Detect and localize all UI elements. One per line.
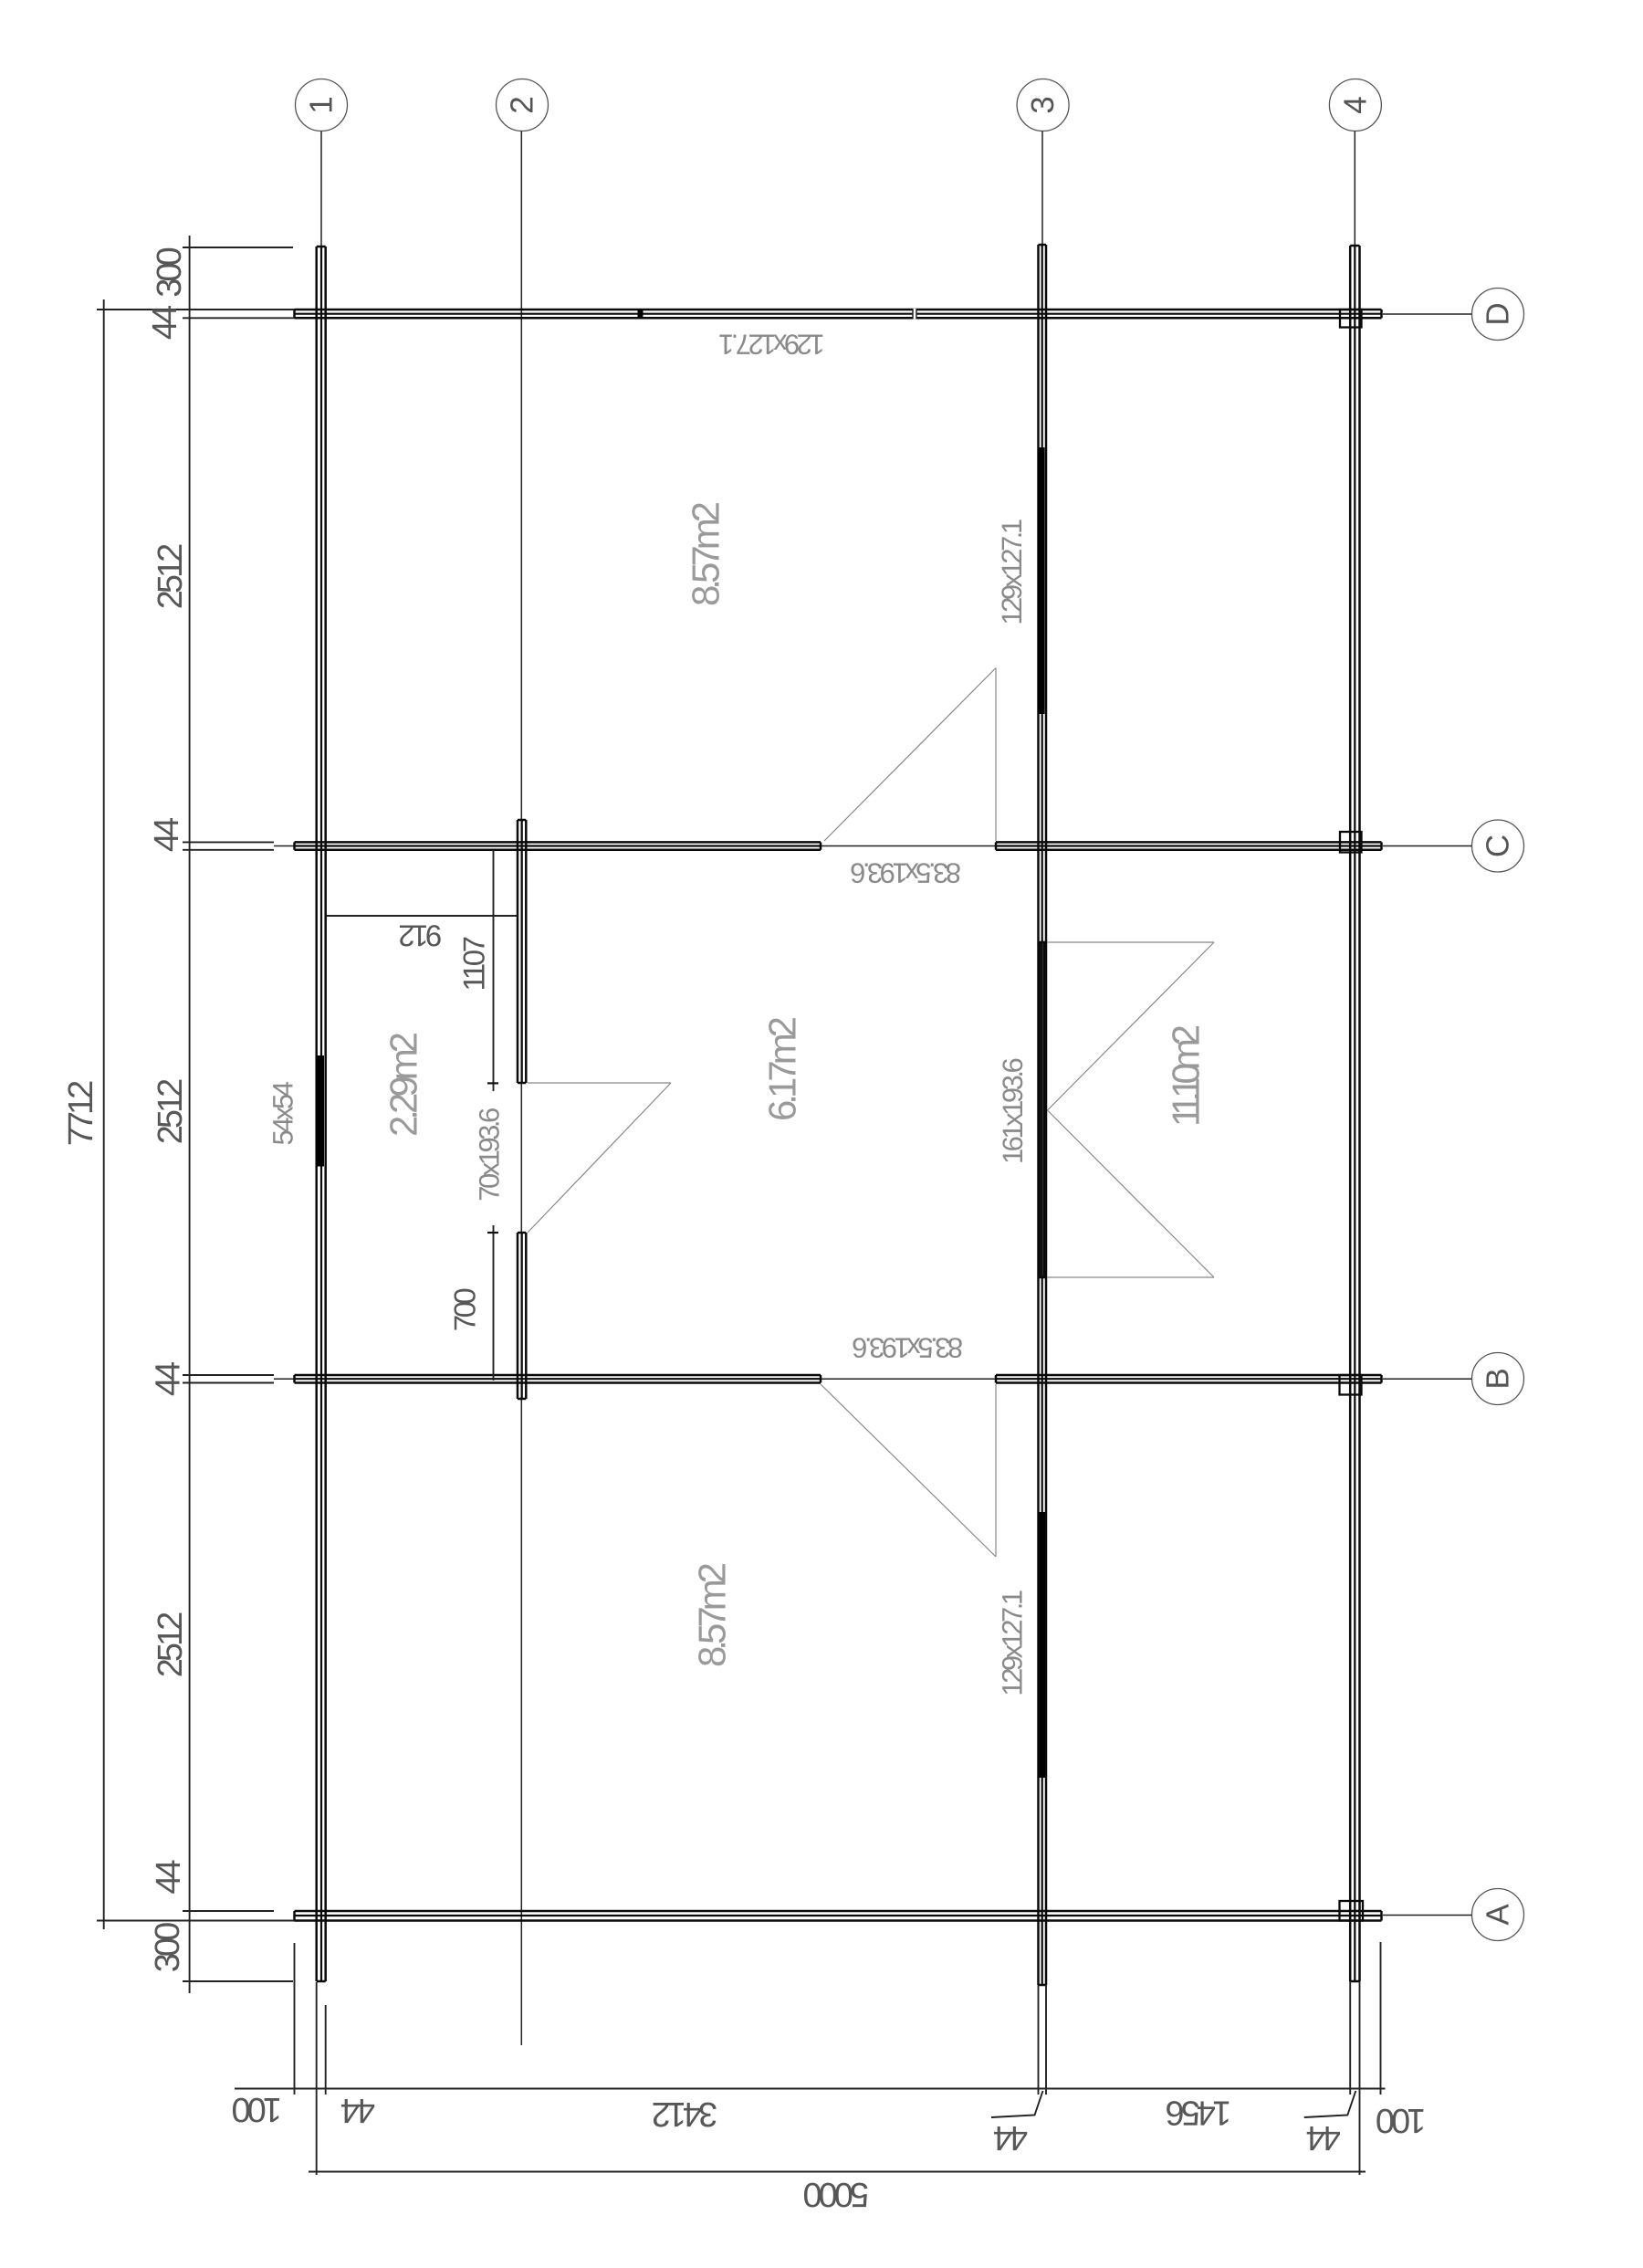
svg-text:7712: 7712 xyxy=(62,1081,100,1146)
svg-text:100: 100 xyxy=(1376,2101,1426,2139)
svg-text:B: B xyxy=(1481,1368,1516,1389)
svg-text:2512: 2512 xyxy=(152,544,190,609)
svg-text:161x193.6: 161x193.6 xyxy=(997,1058,1029,1164)
svg-text:3: 3 xyxy=(1025,96,1061,113)
svg-text:300: 300 xyxy=(149,1923,187,1972)
svg-text:D: D xyxy=(1481,302,1516,325)
svg-text:54x54: 54x54 xyxy=(267,1081,299,1145)
svg-text:6.17m2: 6.17m2 xyxy=(761,1017,804,1121)
svg-text:8.57m2: 8.57m2 xyxy=(691,1563,734,1667)
svg-text:912: 912 xyxy=(400,919,443,953)
svg-text:129x127.1: 129x127.1 xyxy=(719,329,825,361)
svg-text:4: 4 xyxy=(1337,96,1373,113)
svg-text:44: 44 xyxy=(993,2118,1028,2157)
svg-text:300: 300 xyxy=(151,247,189,297)
svg-text:44: 44 xyxy=(150,1860,188,1895)
svg-text:129x127.1: 129x127.1 xyxy=(997,1591,1029,1696)
svg-text:1: 1 xyxy=(304,96,340,113)
svg-text:3412: 3412 xyxy=(653,2095,717,2133)
svg-text:700: 700 xyxy=(448,1288,482,1332)
svg-text:44: 44 xyxy=(150,1361,188,1396)
svg-text:83.5x193.6: 83.5x193.6 xyxy=(853,1332,963,1364)
svg-text:44: 44 xyxy=(146,305,184,340)
svg-text:11.10m2: 11.10m2 xyxy=(1165,1025,1208,1127)
svg-text:100: 100 xyxy=(233,2090,282,2128)
svg-text:2: 2 xyxy=(505,96,540,113)
svg-text:44: 44 xyxy=(340,2091,375,2129)
svg-text:2.29m2: 2.29m2 xyxy=(382,1033,425,1137)
svg-text:44: 44 xyxy=(148,817,186,852)
svg-text:2512: 2512 xyxy=(152,1079,190,1144)
svg-text:1456: 1456 xyxy=(1167,2094,1231,2132)
svg-text:44: 44 xyxy=(1306,2118,1341,2157)
svg-text:A: A xyxy=(1481,1904,1516,1926)
svg-text:C: C xyxy=(1481,835,1516,857)
svg-text:2512: 2512 xyxy=(152,1612,190,1677)
svg-text:83.5x193.6: 83.5x193.6 xyxy=(851,857,961,889)
svg-text:1107: 1107 xyxy=(457,937,491,991)
svg-text:5000: 5000 xyxy=(804,2175,869,2213)
svg-text:129x127.1: 129x127.1 xyxy=(996,520,1028,625)
svg-text:70x193.6: 70x193.6 xyxy=(474,1108,506,1202)
svg-text:8.57m2: 8.57m2 xyxy=(685,502,727,606)
